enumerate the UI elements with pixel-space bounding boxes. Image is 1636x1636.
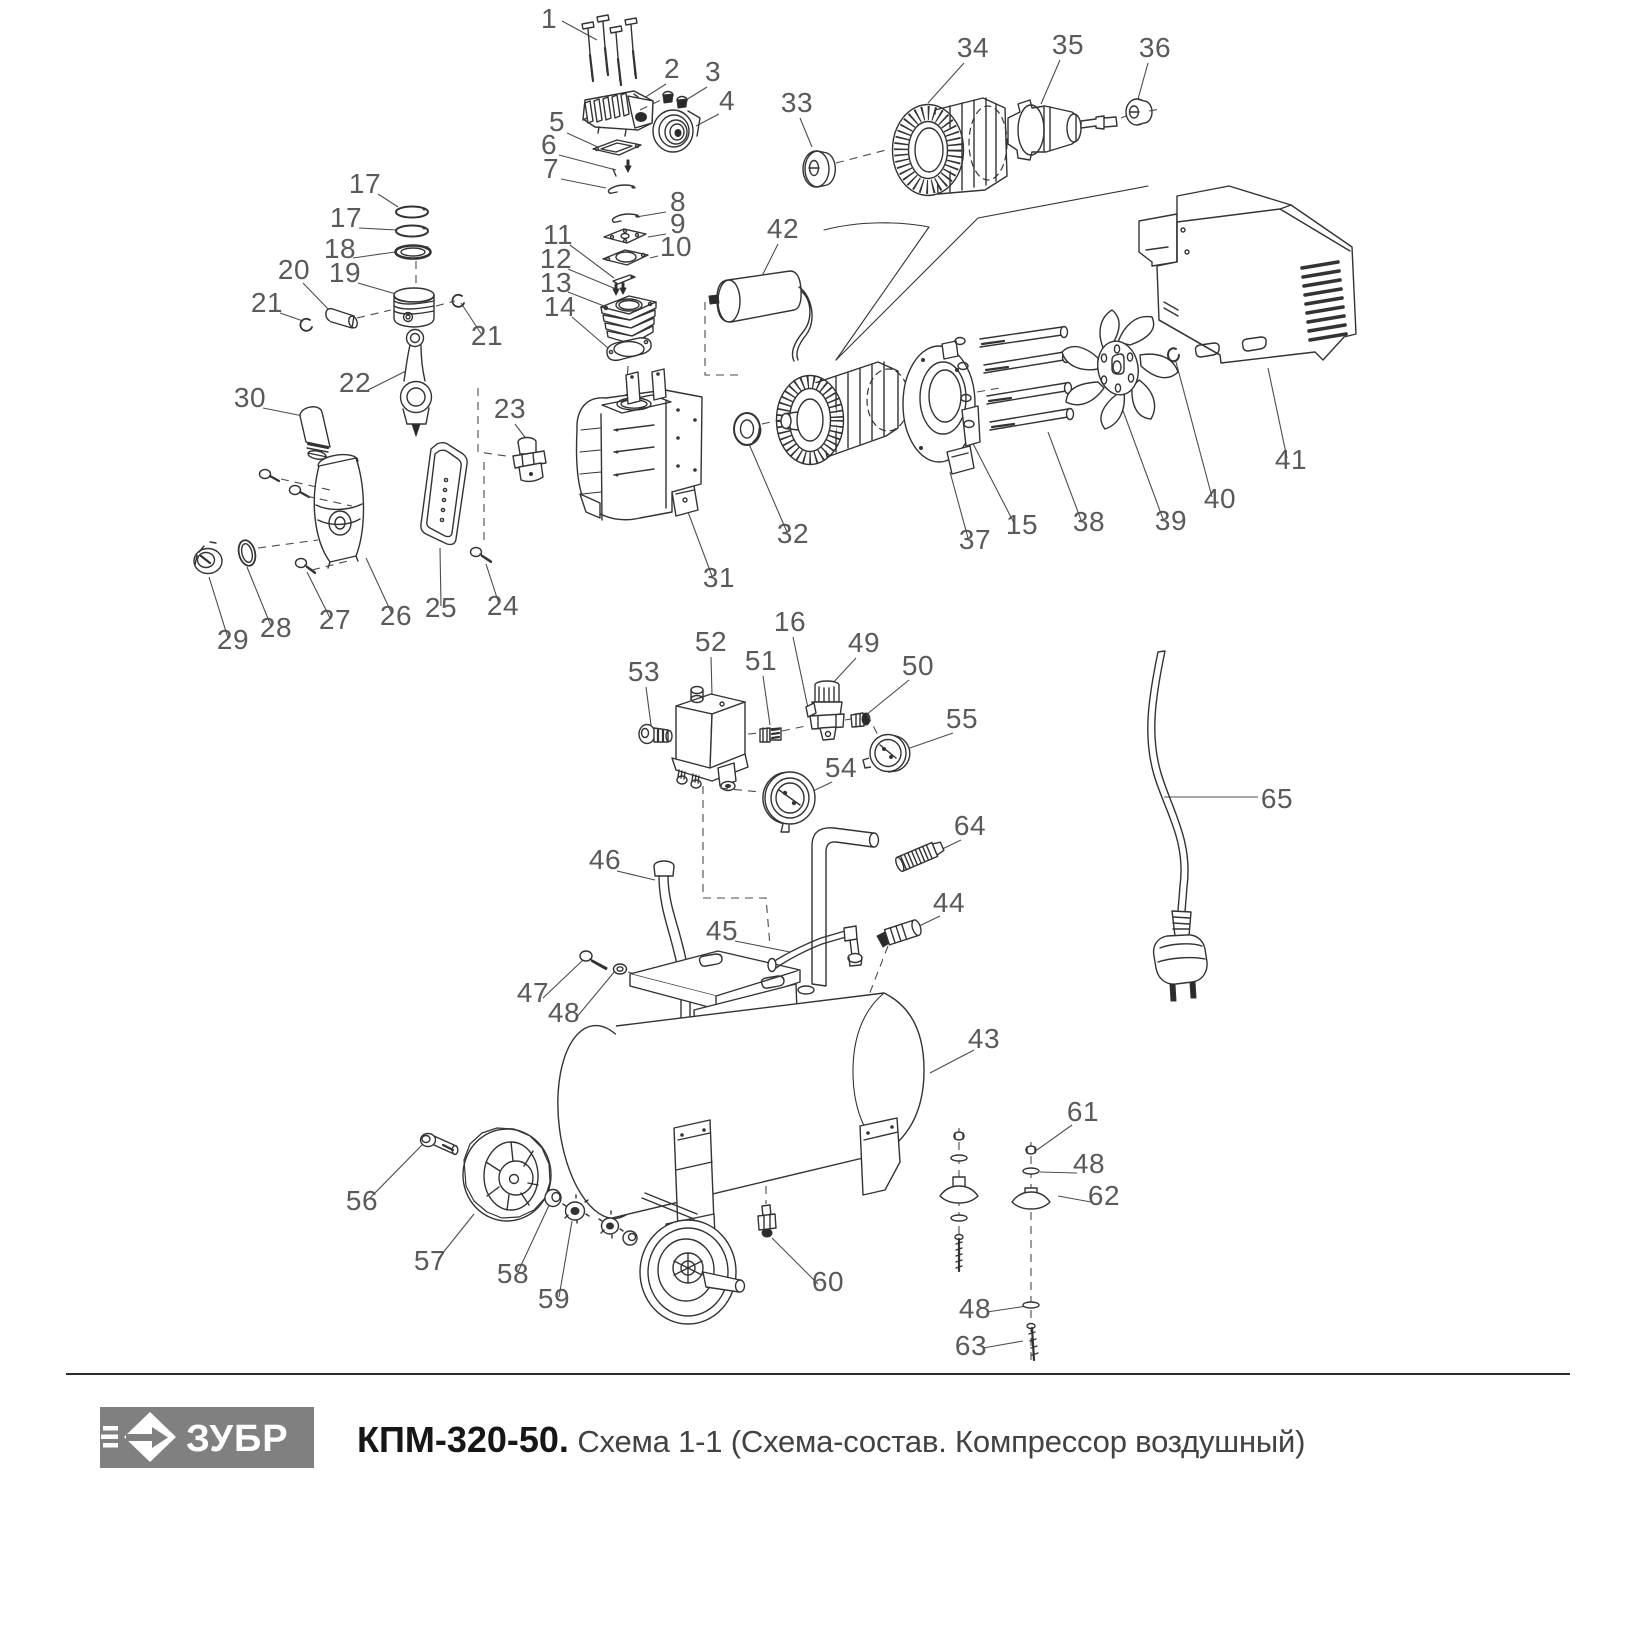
svg-text:54: 54 — [825, 752, 857, 783]
svg-text:10: 10 — [660, 231, 692, 262]
svg-text:28: 28 — [260, 612, 292, 643]
svg-text:ЗУБР: ЗУБР — [186, 1418, 289, 1460]
svg-text:30: 30 — [234, 382, 266, 413]
svg-text:35: 35 — [1052, 29, 1084, 60]
svg-text:15: 15 — [1006, 509, 1038, 540]
svg-text:2: 2 — [664, 53, 680, 84]
svg-text:22: 22 — [339, 367, 371, 398]
svg-text:34: 34 — [957, 32, 989, 63]
svg-text:20: 20 — [278, 254, 310, 285]
svg-text:23: 23 — [494, 393, 526, 424]
svg-text:62: 62 — [1088, 1180, 1120, 1211]
svg-text:14: 14 — [544, 291, 576, 322]
svg-text:46: 46 — [589, 844, 621, 875]
svg-text:48: 48 — [1073, 1148, 1105, 1179]
svg-text:51: 51 — [745, 645, 777, 676]
svg-text:41: 41 — [1275, 444, 1307, 475]
svg-text:56: 56 — [346, 1185, 378, 1216]
svg-text:17: 17 — [349, 168, 381, 199]
svg-text:61: 61 — [1067, 1096, 1099, 1127]
svg-text:1: 1 — [541, 3, 557, 34]
svg-text:21: 21 — [251, 287, 283, 318]
svg-text:57: 57 — [414, 1245, 446, 1276]
svg-text:31: 31 — [703, 562, 735, 593]
svg-text:17: 17 — [330, 202, 362, 233]
svg-text:40: 40 — [1204, 483, 1236, 514]
svg-text:50: 50 — [902, 650, 934, 681]
svg-text:49: 49 — [848, 627, 880, 658]
svg-text:42: 42 — [767, 213, 799, 244]
svg-text:45: 45 — [706, 915, 738, 946]
svg-text:53: 53 — [628, 656, 660, 687]
svg-text:37: 37 — [959, 524, 991, 555]
svg-text:59: 59 — [538, 1283, 570, 1314]
svg-text:65: 65 — [1261, 783, 1293, 814]
svg-text:7: 7 — [543, 153, 559, 184]
svg-text:58: 58 — [497, 1258, 529, 1289]
svg-text:24: 24 — [487, 590, 519, 621]
svg-text:48: 48 — [959, 1293, 991, 1324]
svg-text:60: 60 — [812, 1266, 844, 1297]
svg-text:44: 44 — [933, 887, 965, 918]
svg-text:16: 16 — [774, 606, 806, 637]
svg-text:64: 64 — [954, 810, 986, 841]
svg-text:КПМ-320-50. Схема 1-1 (Схема-с: КПМ-320-50. Схема 1-1 (Схема-состав. Ком… — [357, 1419, 1305, 1460]
svg-text:47: 47 — [517, 977, 549, 1008]
svg-text:3: 3 — [705, 56, 721, 87]
svg-text:48: 48 — [548, 997, 580, 1028]
svg-text:36: 36 — [1139, 32, 1171, 63]
svg-text:4: 4 — [719, 85, 735, 116]
svg-text:55: 55 — [946, 703, 978, 734]
svg-text:27: 27 — [319, 604, 351, 635]
svg-text:52: 52 — [695, 626, 727, 657]
svg-text:29: 29 — [217, 624, 249, 655]
svg-text:63: 63 — [955, 1330, 987, 1361]
svg-text:26: 26 — [380, 600, 412, 631]
svg-text:43: 43 — [968, 1023, 1000, 1054]
svg-text:19: 19 — [329, 257, 361, 288]
svg-text:33: 33 — [781, 87, 813, 118]
svg-text:32: 32 — [777, 518, 809, 549]
